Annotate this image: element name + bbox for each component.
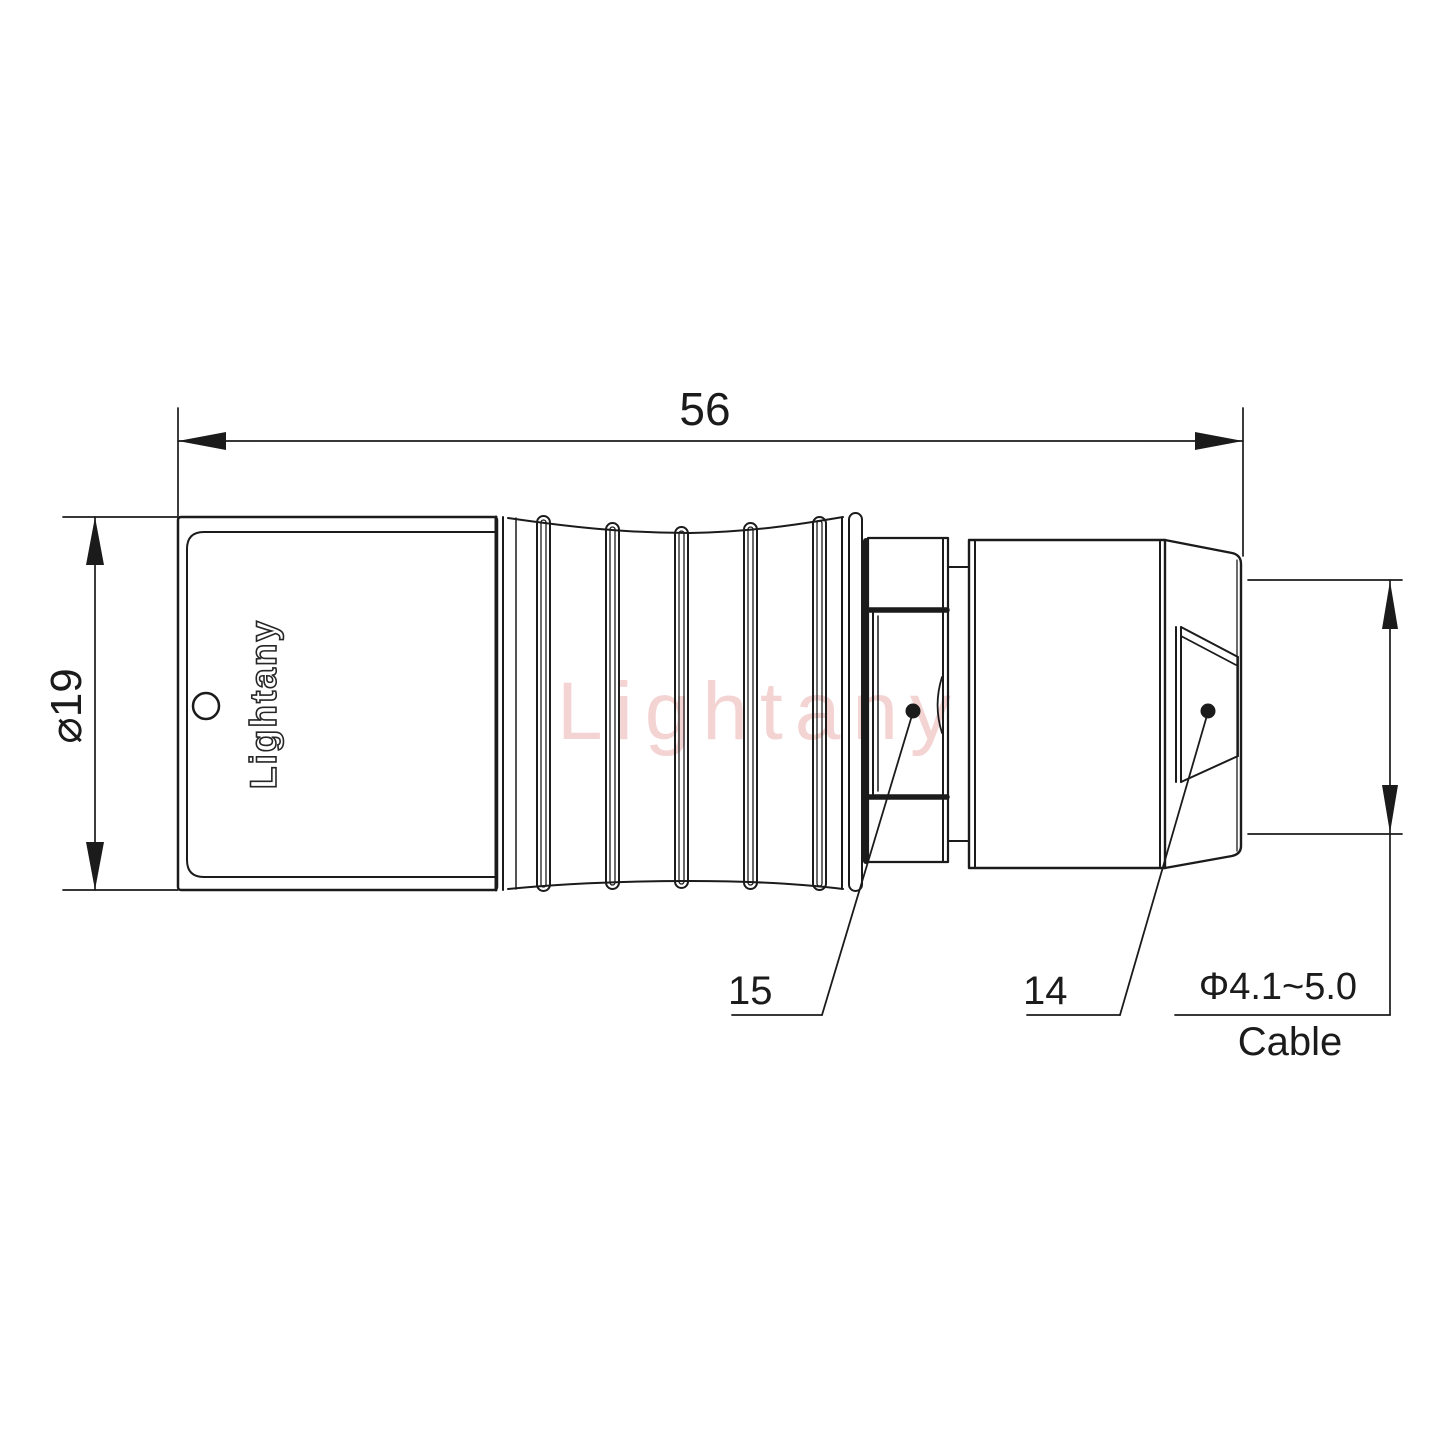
dim-cable-diameter: [1175, 580, 1402, 1015]
grip-ribs: [537, 516, 826, 891]
cable-diameter-range-label: Φ4.1~5.0: [1160, 965, 1396, 1009]
arrow-left-icon: [178, 432, 226, 450]
arrow-down-icon: [1382, 785, 1398, 833]
leader-dot: [1201, 704, 1216, 719]
connector-line-art: [0, 0, 1440, 1440]
grip-sleeve: [496, 513, 866, 891]
shell-hole: [193, 693, 219, 719]
front-shell: [178, 517, 497, 890]
latch-collar: [868, 538, 948, 862]
part-number-14-label: 14: [1023, 969, 1068, 1013]
cable-caption-label: Cable: [1190, 1020, 1390, 1064]
arrow-down-icon: [86, 842, 104, 890]
leader-dot: [906, 704, 921, 719]
overall-length-label: 56: [655, 384, 755, 434]
technical-drawing-canvas: Lightany: [0, 0, 1440, 1440]
arrow-right-icon: [1195, 432, 1243, 450]
part-number-15-label: 15: [728, 969, 773, 1013]
backshell-nut: [969, 540, 1165, 868]
arrow-up-icon: [86, 517, 104, 565]
brand-logo-engraving: Lightany: [242, 594, 286, 814]
shell-diameter-label: ⌀19: [44, 606, 90, 806]
collar-nut-shaft: [948, 567, 969, 841]
arrow-up-icon: [1382, 581, 1398, 629]
